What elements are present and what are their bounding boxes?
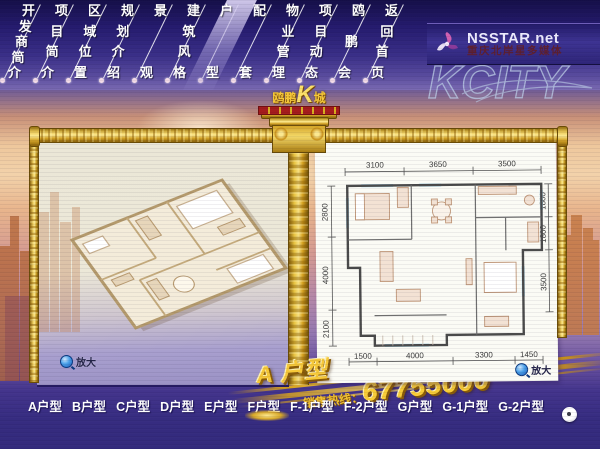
top-nav-char: 简	[12, 51, 25, 64]
unit-type-nav: A户型B户型C户型D户型E户型F户型F-1户型F-2户型G户型G-1户型G-2户…	[28, 396, 544, 415]
top-nav-char: 观	[140, 66, 153, 79]
next-page-button[interactable]	[562, 407, 577, 422]
unit-link-A户型[interactable]: A户型	[28, 396, 62, 415]
gold-pillar-column	[288, 149, 309, 385]
nsstar-name: NSSTAR.net	[467, 31, 563, 47]
star-flower-icon	[432, 29, 462, 59]
unit-link-D户型[interactable]: D户型	[160, 396, 194, 415]
top-nav-char: 划	[116, 25, 129, 38]
top-nav-item-1[interactable]: 开发商简介	[7, 4, 40, 86]
top-nav-char: 物	[286, 4, 299, 17]
unit-link-C户型[interactable]: C户型	[116, 396, 150, 415]
top-nav-item-2[interactable]: 项目简介	[40, 4, 73, 86]
nsstar-subtitle: 重庆北岸星多媒体	[467, 46, 563, 57]
brand-suffix: 城	[314, 91, 326, 105]
top-nav-char: 项	[55, 4, 68, 17]
dim-label: 1450	[520, 350, 538, 359]
top-nav-char: 介	[41, 66, 54, 79]
brand-k: K	[296, 81, 313, 108]
unit-link-G-1户型[interactable]: G-1户型	[442, 396, 488, 415]
dim-label: 3650	[429, 160, 447, 169]
top-nav-char: 态	[305, 66, 318, 79]
zoom-label: 放大	[76, 354, 96, 369]
top-nav-char: 项	[319, 4, 332, 17]
top-nav-char: 介	[112, 45, 125, 58]
floorplan-2d-drawing: 3100 3650 3500 2800 4000 2100	[315, 138, 559, 384]
dim-label: 3500	[498, 159, 516, 168]
top-nav-item-9[interactable]: 物业管理	[271, 4, 304, 86]
dim-label: 1800	[539, 224, 548, 242]
unit-link-E户型[interactable]: E户型	[204, 396, 237, 415]
top-nav-char: 会	[338, 66, 351, 79]
magnifier-icon	[60, 355, 73, 368]
top-nav-char: 管	[277, 45, 290, 58]
top-nav-char: 回	[380, 25, 393, 38]
top-nav-char: 首	[376, 45, 389, 58]
gold-bar-end-right	[557, 126, 568, 147]
top-nav-item-12[interactable]: 返回首页	[370, 4, 403, 86]
unit-link-G-2户型[interactable]: G-2户型	[498, 396, 544, 415]
unit-link-B户型[interactable]: B户型	[72, 396, 106, 415]
brand-prefix: 鸥鹏	[272, 91, 296, 105]
unit-link-F-2户型[interactable]: F-2户型	[344, 396, 388, 415]
dim-label: 1500	[354, 352, 372, 361]
top-nav-char: 动	[310, 45, 323, 58]
top-nav-char: 置	[74, 66, 87, 79]
nsstar-logo-box[interactable]: NSSTAR.net 重庆北岸星多媒体	[427, 23, 600, 65]
top-nav-char: 户	[220, 4, 233, 17]
top-nav-item-10[interactable]: 项目动态	[304, 4, 337, 86]
top-nav-item-3[interactable]: 区域位置	[73, 4, 106, 86]
zoom-in-left[interactable]: 放大	[60, 354, 96, 369]
gold-frame-right	[557, 141, 567, 338]
floorplan-3d-drawing	[37, 142, 289, 385]
unit-link-F-1户型[interactable]: F-1户型	[290, 396, 334, 415]
dim-label: 3500	[539, 272, 548, 290]
dim-label: 2100	[322, 320, 331, 338]
top-nav-char: 套	[239, 66, 252, 79]
floorplan-2d-panel: 3100 3650 3500 2800 4000 2100	[315, 138, 559, 384]
top-nav-char: 建	[187, 4, 200, 17]
gold-frame-left	[29, 141, 39, 383]
gold-bar-end-left	[29, 126, 40, 147]
top-nav-char: 目	[50, 25, 63, 38]
top-nav-item-5[interactable]: 景观	[139, 4, 172, 86]
pillar-capital-volutes	[272, 125, 326, 153]
top-nav-item-11[interactable]: 鸥鹏会	[337, 4, 370, 86]
dim-label: 3300	[475, 350, 493, 359]
top-nav-char: 简	[46, 45, 59, 58]
dim-label: 2800	[320, 203, 329, 221]
top-nav-char: 商	[15, 35, 28, 48]
top-nav-char: 型	[206, 66, 219, 79]
zoom-in-right[interactable]: 放大	[515, 362, 551, 377]
unit-title: A 户型	[255, 350, 330, 390]
top-nav-char: 规	[121, 4, 134, 17]
top-nav-char: 业	[281, 25, 294, 38]
top-nav-items: 开发商简介项目简介区域位置规划介绍景观建筑风格户型配套物业管理项目动态鸥鹏会返回…	[7, 4, 403, 86]
top-nav-char: 绍	[107, 66, 120, 79]
top-nav-char: 介	[8, 66, 21, 79]
top-nav-char: 发	[19, 20, 32, 33]
floorplan-3d-panel: 放大	[37, 142, 289, 387]
unit-link-F户型[interactable]: F户型	[247, 396, 280, 415]
top-nav-char: 理	[272, 66, 285, 79]
top-nav-char: 位	[79, 45, 92, 58]
top-nav-item-7[interactable]: 户型	[205, 4, 238, 86]
top-nav-char: 开	[22, 4, 35, 17]
top-nav-char: 鸥	[352, 4, 365, 17]
top-nav-char: 页	[371, 66, 384, 79]
page: 开发商简介项目简介区域位置规划介绍景观建筑风格户型配套物业管理项目动态鸥鹏会返回…	[0, 0, 600, 449]
top-nav-char: 格	[173, 66, 186, 79]
top-nav-char: 配	[253, 4, 266, 17]
unit-link-G户型[interactable]: G户型	[398, 396, 433, 415]
top-nav-char: 区	[88, 4, 101, 17]
top-nav-char: 风	[178, 45, 191, 58]
zoom-label: 放大	[531, 362, 551, 377]
top-nav-char: 鹏	[345, 35, 358, 48]
dim-label: 4000	[321, 266, 330, 284]
top-nav-char: 目	[314, 25, 327, 38]
top-nav-item-4[interactable]: 规划介绍	[106, 4, 139, 86]
brand-ribbon	[258, 106, 340, 115]
magnifier-icon	[515, 363, 528, 376]
top-nav-char: 景	[154, 4, 167, 17]
top-nav-char: 返	[385, 4, 398, 17]
dim-label: 3100	[366, 161, 384, 170]
top-nav-char: 域	[83, 25, 96, 38]
top-nav-char: 筑	[182, 25, 195, 38]
dim-label: 4000	[406, 351, 424, 360]
